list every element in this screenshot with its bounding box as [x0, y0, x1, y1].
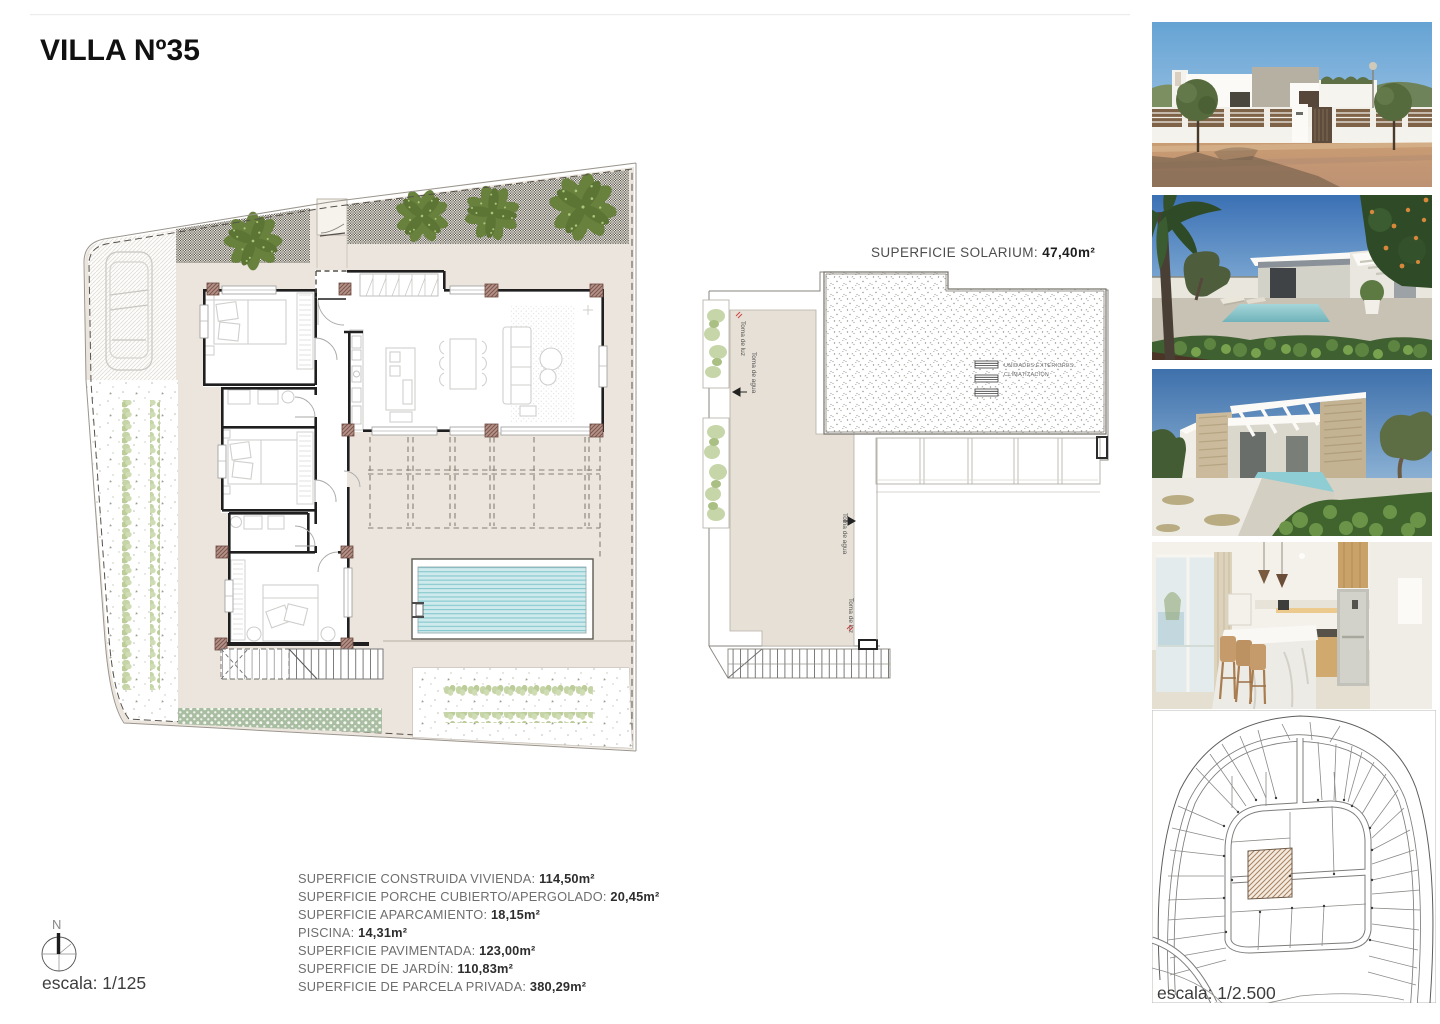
svg-text:SUPERFICIE APARCAMIENTO: 18,15: SUPERFICIE APARCAMIENTO: 18,15m²: [298, 907, 540, 922]
svg-text:SUPERFICIE PORCHE CUBIERTO/APE: SUPERFICIE PORCHE CUBIERTO/APERGOLADO: 2…: [298, 889, 659, 904]
svg-text:Toma de agua: Toma de agua: [841, 513, 848, 555]
svg-text:Toma de luz: Toma de luz: [739, 321, 746, 356]
svg-text:escala: 1/2.500: escala: 1/2.500: [1157, 983, 1276, 1003]
svg-text:escala: 1/125: escala: 1/125: [42, 973, 146, 993]
svg-text:SUPERFICIE SOLARIUM: 47,40m²: SUPERFICIE SOLARIUM: 47,40m²: [871, 245, 1095, 260]
svg-text:N: N: [52, 917, 61, 932]
svg-text:Toma de agua: Toma de agua: [750, 352, 757, 394]
svg-text:UNIDADES EXTERIORES: UNIDADES EXTERIORES: [1004, 363, 1074, 369]
svg-text:CLIMATIZACIÓN: CLIMATIZACIÓN: [1004, 371, 1049, 378]
svg-text:SUPERFICIE DE PARCELA PRIVADA:: SUPERFICIE DE PARCELA PRIVADA: 380,29m²: [298, 979, 586, 994]
svg-text:VILLA Nº35: VILLA Nº35: [40, 34, 200, 67]
svg-text:PISCINA: 14,31m²: PISCINA: 14,31m²: [298, 925, 407, 940]
svg-text:SUPERFICIE CONSTRUIDA VIVIENDA: SUPERFICIE CONSTRUIDA VIVIENDA: 114,50m²: [298, 871, 595, 886]
svg-text:SUPERFICIE PAVIMENTADA: 123,00: SUPERFICIE PAVIMENTADA: 123,00m²: [298, 943, 536, 958]
svg-text:SUPERFICIE DE JARDÍN: 110,83m²: SUPERFICIE DE JARDÍN: 110,83m²: [298, 961, 513, 976]
